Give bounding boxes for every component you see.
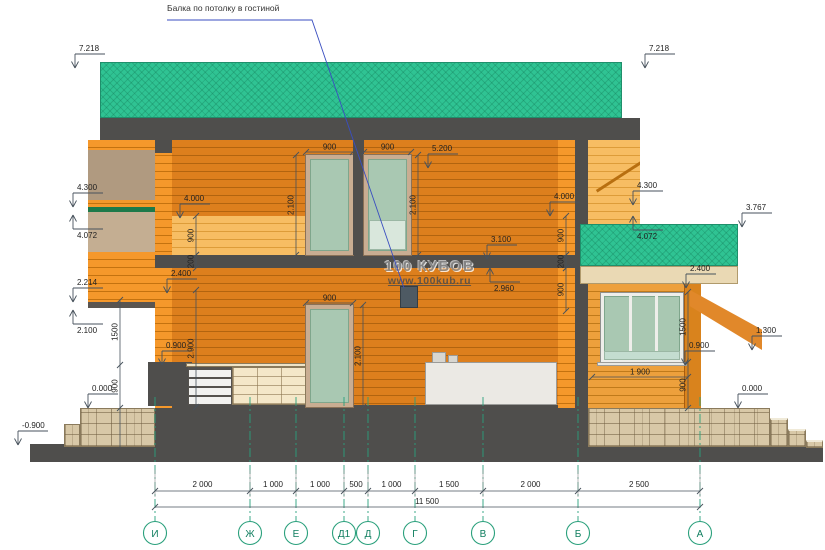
dim-label-door1_2f_height: 2.100: [287, 194, 296, 215]
chain-dim-1: 1 000: [263, 480, 284, 489]
elevation-label-annex_0900: 0.900: [689, 341, 710, 350]
elevation-label-ceiling_2f_5200: 5.200: [432, 144, 453, 153]
chain-dim-5: 1 500: [439, 480, 460, 489]
dim-label-parapet_right_900: 900: [557, 228, 566, 242]
dim-label-door_1f_height: 2.100: [354, 345, 363, 366]
annotation-layer: 7.2187.2184.3004.0722.2142.1000.000-0.90…: [0, 0, 825, 550]
elevation-label-annex_2400: 2.400: [690, 264, 711, 273]
chain-dim-2: 1 000: [310, 480, 331, 489]
dim-label-bay_1500: 1500: [111, 323, 120, 341]
leader-label: Балка по потолку в гостиной: [167, 3, 279, 13]
elevation-label-annex_3767: 3.767: [746, 203, 767, 212]
elevation-label-kitchen_0900: 0.900: [166, 341, 187, 350]
chain-dim-4: 1 000: [381, 480, 402, 489]
chain-total: 11 500: [415, 497, 439, 506]
axis-letter-7: Б: [575, 529, 582, 540]
elevation-label-right_1300: 1.300: [756, 326, 777, 335]
elevation-label-roof_right: 7.218: [649, 44, 670, 53]
axis-letter-8: А: [697, 529, 704, 540]
elevation-label-roof_left: 7.218: [79, 44, 100, 53]
elevation-label-slab_3100: 3.100: [491, 235, 512, 244]
chain-dim-0: 2 000: [192, 480, 213, 489]
elevation-label-left_2400: 2.400: [171, 269, 192, 278]
elevation-label-right_4072: 4.072: [637, 232, 658, 241]
dim-label-annex_window_1500: 1500: [679, 318, 688, 336]
axis-letter-2: Е: [293, 529, 300, 540]
axis-letter-0: И: [151, 529, 158, 540]
elevation-label-left_2214: 2.214: [77, 278, 98, 287]
dim-label-door1_2f_width: 900: [323, 143, 337, 152]
dim-label-door_1f_width: 900: [323, 294, 337, 303]
dim-label-door2_2f_width: 900: [381, 143, 395, 152]
elevation-label-left_minus0900: -0.900: [22, 421, 45, 430]
elevation-label-left_0000: 0.000: [92, 384, 113, 393]
dim-label-slab_right_200: 200: [557, 254, 566, 268]
elevation-label-ceiling_1f_2960: 2.960: [494, 284, 515, 293]
dim-label-annex_sill_900: 900: [679, 378, 688, 392]
axis-letter-4: Д: [365, 529, 372, 540]
elevation-label-left_4000: 4.000: [184, 194, 205, 203]
dim-label-annex_width_1900: 1 900: [630, 368, 651, 377]
chain-dim-3: 500: [349, 480, 363, 489]
elevation-label-left_4072: 4.072: [77, 231, 98, 240]
elevation-label-right_4000: 4.000: [554, 192, 575, 201]
elevation-label-left_4300: 4.300: [77, 183, 98, 192]
dim-label-parapet_left_900: 900: [187, 228, 196, 242]
section-drawing: 100 КУБОВ www.100kub.ru Балка по потолку…: [0, 0, 825, 550]
dim-label-bay_900: 900: [111, 379, 120, 393]
elevation-label-right_0000: 0.000: [742, 384, 763, 393]
dim-label-slab_left_200: 200: [187, 254, 196, 268]
chain-dim-7: 2 500: [629, 480, 650, 489]
axis-letter-5: Г: [412, 529, 418, 540]
dim-label-room_height_2900: 2.900: [187, 338, 196, 359]
dim-label-door2_2f_height: 2.100: [409, 194, 418, 215]
axis-letter-1: Ж: [245, 529, 255, 540]
chain-dim-6: 2 000: [520, 480, 541, 489]
dim-label-below_slab_right_900: 900: [557, 282, 566, 296]
elevation-label-left_2100: 2.100: [77, 326, 98, 335]
axis-letter-6: В: [480, 529, 487, 540]
elevation-label-right_4300: 4.300: [637, 181, 658, 190]
axis-letter-3: Д1: [338, 529, 351, 540]
